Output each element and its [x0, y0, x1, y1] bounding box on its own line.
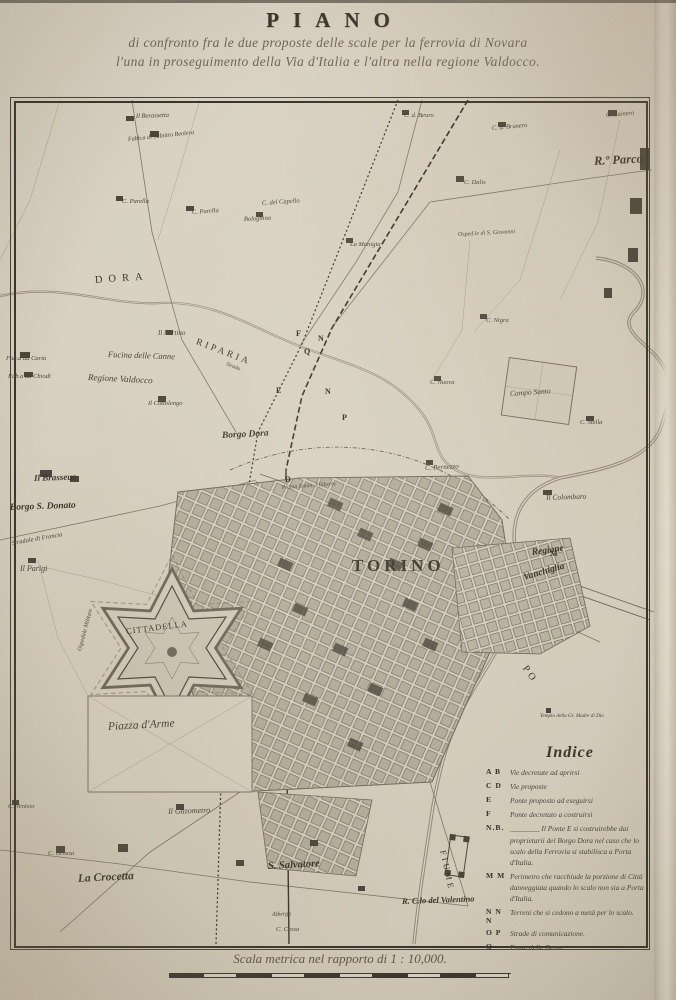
- legend-item-description: Vie proposte: [510, 781, 547, 792]
- legend-item-key: N N N: [486, 907, 510, 925]
- scale-bar-segment: [203, 974, 237, 978]
- legend-item: C DVie proposte: [486, 781, 654, 792]
- legend-item-description: Terreni che si cedono a metà per lo scal…: [510, 907, 634, 925]
- legend-item-key: F: [486, 809, 510, 820]
- legend-item-description: Ponte decretato a costruirsi: [510, 809, 592, 820]
- map-sheet: PIANO di confronto fra le due proposte d…: [0, 0, 676, 1000]
- scale-bar-segment: [271, 974, 305, 978]
- scale-bar-segment: [169, 974, 203, 978]
- scale-bar-segment: [305, 974, 339, 978]
- scale-area: Scala metrica nel rapporto di 1 : 10,000…: [110, 951, 570, 978]
- scale-bar-segment: [339, 974, 373, 978]
- legend-item-description: Ponte proposto ad eseguirsi: [510, 795, 593, 806]
- scale-bar-segment: [407, 974, 441, 978]
- legend-item: O PStrade di comunicazione.: [486, 928, 654, 939]
- legend-item-key: A B: [486, 767, 510, 778]
- legend-item: A BVie decretate ad aprirsi: [486, 767, 654, 778]
- legend-item-description: Perimetro che racchiude la porzione di C…: [510, 871, 654, 904]
- legend-item: M MPerimetro che racchiude la porzione d…: [486, 871, 654, 904]
- legend-item: FPonte decretato a costruirsi: [486, 809, 654, 820]
- legend-item: N.B.________ Il Ponte E si costruirebbe …: [486, 823, 654, 867]
- scale-caption: Scala metrica nel rapporto di 1 : 10,000…: [110, 951, 570, 967]
- mat-edge-right: [654, 0, 676, 1000]
- legend-items: A BVie decretate ad aprirsiC DVie propos…: [486, 767, 654, 953]
- legend-item: N N NTerreni che si cedono a metà per lo…: [486, 907, 654, 925]
- legend-title: Indice: [486, 744, 654, 762]
- legend-item: EPonte proposto ad eseguirsi: [486, 795, 654, 806]
- legend-item-key: E: [486, 795, 510, 806]
- photo-edge-top: [0, 0, 676, 3]
- legend-item-key: C D: [486, 781, 510, 792]
- scale-bar: [169, 973, 511, 978]
- legend-item-description: ________ Il Ponte E si costruirebbe dai …: [510, 823, 654, 867]
- legend-item-key: O P: [486, 928, 510, 939]
- scale-bar-segment: [373, 974, 407, 978]
- legend-item-description: Vie decretate ad aprirsi: [510, 767, 580, 778]
- scale-bar-segment: [441, 974, 475, 978]
- scale-bar-segment: [237, 974, 271, 978]
- legend-box: Indice A BVie decretate ad aprirsiC DVie…: [486, 744, 654, 956]
- legend-item-key: N.B.: [486, 823, 510, 867]
- legend-item-description: Strade di comunicazione.: [510, 928, 585, 939]
- legend-item-key: M M: [486, 871, 510, 904]
- scale-bar-segment: [475, 974, 509, 978]
